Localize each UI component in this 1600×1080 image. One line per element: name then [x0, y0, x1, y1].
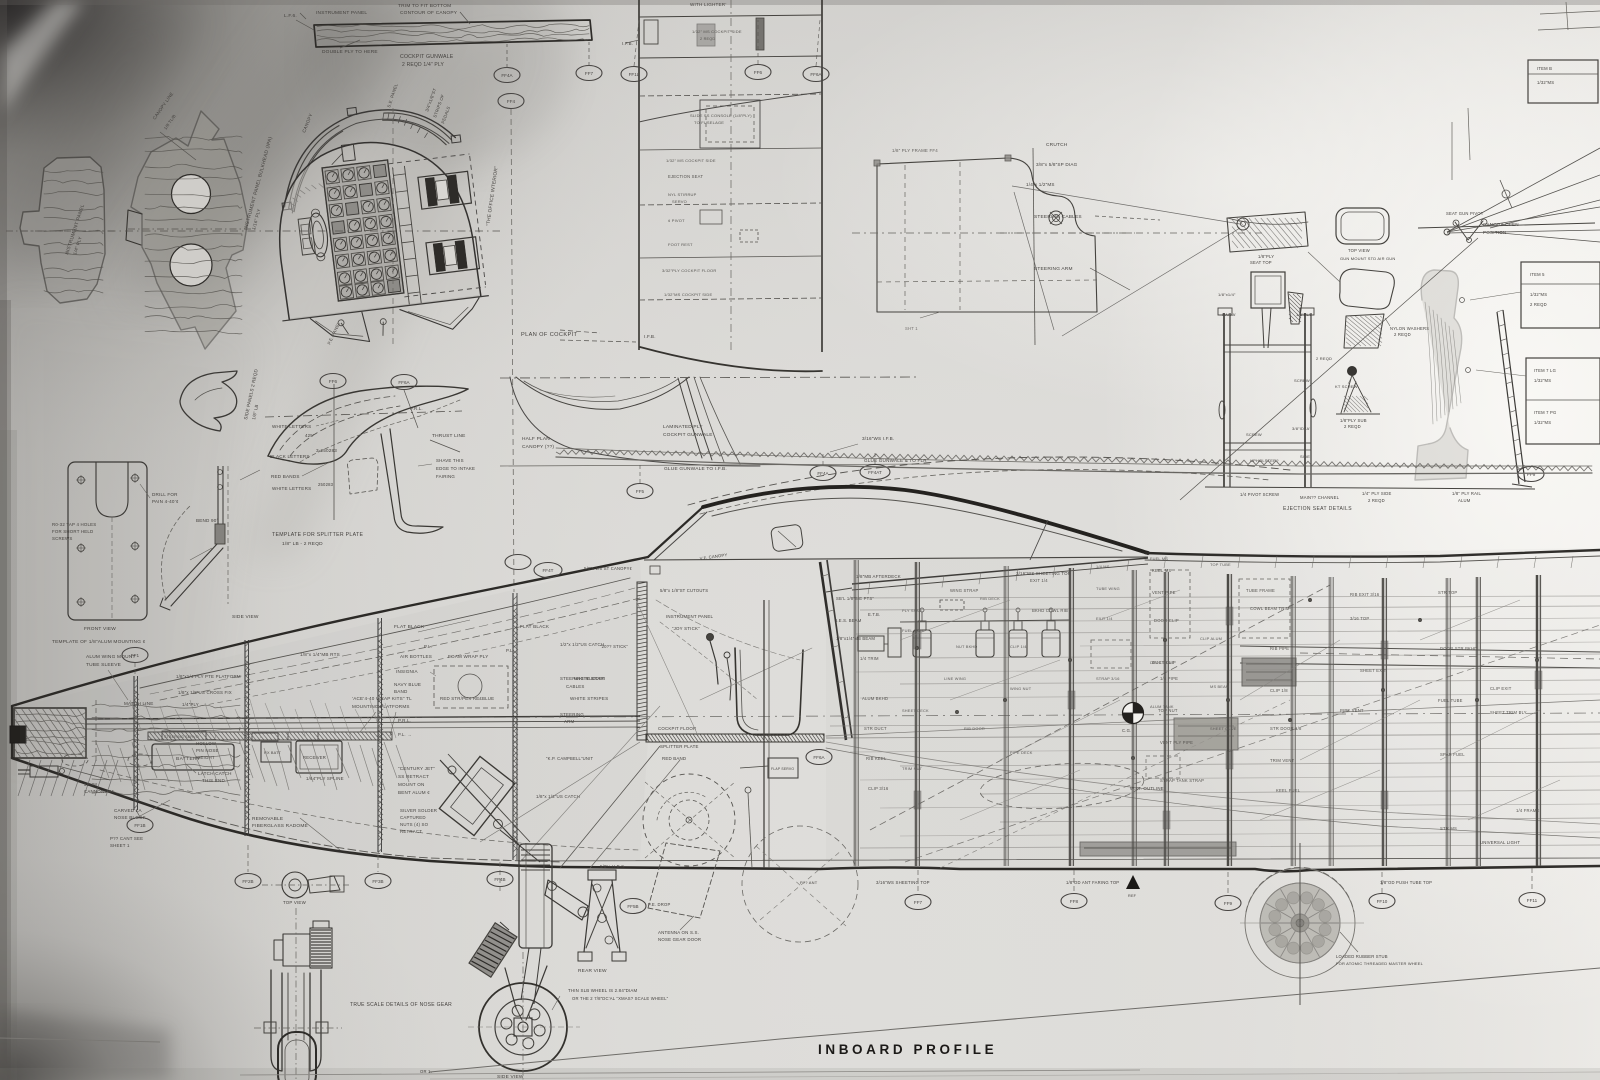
- svg-text:1/8” LB - 2 REQD: 1/8” LB - 2 REQD: [282, 541, 323, 547]
- svg-text:EJECTION SEAT DETAILS: EJECTION SEAT DETAILS: [1283, 506, 1352, 512]
- svg-text:ANTENNA ON S.S.: ANTENNA ON S.S.: [658, 930, 699, 935]
- svg-text:1/4”x 1/2”MS: 1/4”x 1/2”MS: [1026, 182, 1055, 187]
- svg-text:SHEET GLUE: SHEET GLUE: [1210, 726, 1237, 731]
- svg-text:FAIRING: FAIRING: [436, 474, 455, 479]
- svg-text:TOP VIEW: TOP VIEW: [283, 900, 307, 905]
- svg-text:FRONT VIEW: FRONT VIEW: [84, 626, 116, 632]
- svg-text:EXIT 1/4: EXIT 1/4: [1096, 616, 1113, 621]
- svg-text:SHT 1: SHT 1: [905, 326, 918, 331]
- svg-text:1/32”MS: 1/32”MS: [1534, 378, 1551, 383]
- svg-text:THIN SLB WHEEL IS 2.84”DIAM: THIN SLB WHEEL IS 2.84”DIAM: [568, 988, 638, 993]
- svg-text:HALF PLAN: HALF PLAN: [522, 436, 550, 442]
- svg-text:FF6A: FF6A: [810, 72, 822, 77]
- svg-text:GUN MOUNT STD AIR GUN: GUN MOUNT STD AIR GUN: [1340, 256, 1395, 261]
- svg-text:INSTRUMENT PANEL: INSTRUMENT PANEL: [316, 10, 367, 16]
- svg-text:PLAN OF COCKPIT: PLAN OF COCKPIT: [521, 332, 578, 338]
- svg-text:RAIL’A’: RAIL’A’: [1222, 312, 1236, 317]
- svg-text:DECK GLUE: DECK GLUE: [1150, 660, 1174, 665]
- svg-text:5/8”+ H.D.S.: 5/8”+ H.D.S.: [600, 864, 626, 869]
- svg-text:SHEET 1: SHEET 1: [110, 843, 130, 848]
- svg-text:3/16”WS I.F.B.: 3/16”WS I.F.B.: [862, 436, 894, 441]
- svg-text:P.R.L.: P.R.L.: [410, 406, 423, 411]
- svg-text:FF6: FF6: [754, 70, 763, 75]
- svg-text:COCKPIT FLOOR: COCKPIT FLOOR: [658, 726, 696, 731]
- svg-text:SHEET EXIT: SHEET EXIT: [1360, 668, 1387, 673]
- svg-text:SLIDE SS CONSOLE (1/8”PLY): SLIDE SS CONSOLE (1/8”PLY): [690, 113, 752, 118]
- svg-text:¢ PIVOT: ¢ PIVOT: [668, 218, 685, 223]
- svg-text:CANOPY (??): CANOPY (??): [522, 444, 554, 450]
- svg-text:CLIP 1/8: CLIP 1/8: [1270, 688, 1288, 693]
- svg-text:CANOPY OPEN: CANOPY OPEN: [1483, 222, 1519, 227]
- svg-text:DOUBLE PLY TO HERE: DOUBLE PLY TO HERE: [322, 49, 378, 55]
- svg-text:SEAT TOP: SEAT TOP: [1250, 260, 1272, 265]
- svg-text:FF9: FF9: [1224, 901, 1233, 906]
- svg-text:VENT PIPE: VENT PIPE: [1152, 590, 1176, 595]
- svg-text:MS BEAM: MS BEAM: [1210, 684, 1229, 689]
- svg-text:COCKPIT GUNWALE: COCKPIT GUNWALE: [663, 432, 713, 438]
- svg-text:2 REQD: 2 REQD: [1368, 498, 1385, 503]
- svg-text:FF10: FF10: [1377, 899, 1388, 904]
- svg-text:3/16”WS SHEETING TOP: 3/16”WS SHEETING TOP: [876, 880, 930, 885]
- svg-text:STRAP 3/16: STRAP 3/16: [1096, 676, 1120, 681]
- svg-text:STR TOP: STR TOP: [1438, 590, 1457, 595]
- svg-text:RIB KEEL: RIB KEEL: [866, 756, 887, 761]
- svg-text:3-250283: 3-250283: [316, 448, 337, 453]
- svg-text:1/4 PIPE: 1/4 PIPE: [1160, 676, 1178, 681]
- svg-text:VENT PLY PIPE: VENT PLY PIPE: [1160, 740, 1193, 745]
- svg-text:1/32”MS: 1/32”MS: [1530, 292, 1547, 297]
- svg-text:3/8”ID ’A’: 3/8”ID ’A’: [1292, 426, 1310, 431]
- svg-text:FF3B: FF3B: [372, 879, 383, 884]
- svg-text:THRUST LINE: THRUST LINE: [432, 433, 466, 439]
- svg-text:POSITION: POSITION: [1483, 230, 1507, 235]
- svg-text:RIB DECK: RIB DECK: [980, 596, 1000, 601]
- svg-text:ITEM 5: ITEM 5: [1530, 272, 1545, 277]
- svg-text:NYL STIRRUP: NYL STIRRUP: [668, 192, 697, 197]
- svg-text:I.F.B.: I.F.B.: [644, 334, 656, 339]
- svg-text:FOR SHORT HELD: FOR SHORT HELD: [52, 529, 93, 534]
- svg-text:1/8”PLY: 1/8”PLY: [1258, 254, 1274, 259]
- svg-text:FOOT REST: FOOT REST: [668, 242, 693, 247]
- svg-text:FLAP SERVO: FLAP SERVO: [771, 767, 794, 771]
- svg-text:1/4 MS: 1/4 MS: [1096, 564, 1110, 569]
- svg-text:NUT BKHD: NUT BKHD: [956, 644, 977, 649]
- svg-text:SIDE VIEW: SIDE VIEW: [232, 614, 259, 620]
- svg-text:CRUTCH: CRUTCH: [1046, 142, 1068, 148]
- svg-text:RIB DOOR: RIB DOOR: [964, 726, 985, 731]
- svg-text:RIB PIPE: RIB PIPE: [1270, 646, 1289, 651]
- svg-text:TOP VIEW: TOP VIEW: [1348, 248, 1370, 253]
- svg-text:STR DUCT: STR DUCT: [864, 726, 887, 731]
- svg-text:EXIT 1/4: EXIT 1/4: [1030, 578, 1048, 583]
- svg-text:FF6A: FF6A: [813, 755, 825, 760]
- svg-text:P?? CANT SEE: P?? CANT SEE: [110, 836, 143, 841]
- svg-text:DOOR CLIP: DOOR CLIP: [1154, 618, 1179, 623]
- svg-text:EDGE TO INTAKE: EDGE TO INTAKE: [436, 466, 475, 471]
- svg-text:RED BANDS: RED BANDS: [271, 474, 300, 479]
- svg-text:PIPE DECK: PIPE DECK: [1010, 750, 1033, 755]
- svg-text:STR MS: STR MS: [1440, 826, 1457, 831]
- svg-text:FF4: FF4: [507, 99, 516, 104]
- svg-text:STEERING ARM: STEERING ARM: [1034, 266, 1073, 272]
- svg-text:1/8” PLY FRAME FF4: 1/8” PLY FRAME FF4: [892, 148, 938, 153]
- svg-text:CLIP 3/16: CLIP 3/16: [868, 786, 889, 791]
- svg-text:1/32” MS COCKPIT SIDE: 1/32” MS COCKPIT SIDE: [692, 29, 742, 34]
- svg-text:RED BAND: RED BAND: [662, 756, 686, 761]
- svg-text:FF5: FF5: [636, 489, 645, 494]
- svg-text:DOOR STR BKHD: DOOR STR BKHD: [1440, 646, 1478, 651]
- svg-text:1/32”MS: 1/32”MS: [1537, 80, 1554, 85]
- svg-text:STRAP TANK STRAP: STRAP TANK STRAP: [1160, 778, 1204, 783]
- svg-text:KEEL MS: KEEL MS: [1152, 568, 1171, 573]
- svg-text:FUEL TUBE: FUEL TUBE: [1438, 698, 1463, 703]
- svg-text:CLIP 1/4: CLIP 1/4: [1010, 644, 1027, 649]
- svg-text:P?? ANT: P?? ANT: [800, 880, 818, 885]
- svg-text:PLY SPAR: PLY SPAR: [902, 608, 922, 613]
- svg-text:SCREW: SCREW: [1246, 432, 1262, 437]
- svg-text:ITEM B: ITEM B: [1537, 66, 1552, 71]
- svg-text:1/32” MS COCKPIT SIDE: 1/32” MS COCKPIT SIDE: [666, 158, 716, 163]
- svg-text:R0-32 TAP 4 HOLES: R0-32 TAP 4 HOLES: [52, 522, 96, 527]
- svg-text:SERVO: SERVO: [672, 199, 687, 204]
- svg-text:FF4A: FF4A: [501, 73, 513, 78]
- svg-text:PAIN 4-40’¢: PAIN 4-40’¢: [152, 499, 179, 504]
- svg-text:2 REQD: 2 REQD: [1344, 424, 1361, 429]
- svg-text:LAMINATED PLY: LAMINATED PLY: [663, 424, 703, 430]
- svg-text:FF4T: FF4T: [543, 568, 554, 573]
- svg-text:TRIM NUT: TRIM NUT: [902, 766, 923, 771]
- svg-text:1/4 PIVOT SCREW: 1/4 PIVOT SCREW: [1240, 492, 1279, 497]
- svg-text:CLIP ALUM: CLIP ALUM: [1200, 636, 1222, 641]
- svg-text:FF4AT: FF4AT: [868, 470, 882, 475]
- svg-text:FF1B: FF1B: [134, 823, 145, 828]
- svg-text:KEEL FUEL: KEEL FUEL: [1276, 788, 1301, 793]
- svg-text:TEMPLATE OF 1/8”ALUM MOUNTING: TEMPLATE OF 1/8”ALUM MOUNTING ¢: [52, 639, 146, 645]
- svg-text:5/8”x 1/8”ST CUTOUTS: 5/8”x 1/8”ST CUTOUTS: [660, 588, 708, 593]
- svg-text:SIDE VIEW: SIDE VIEW: [497, 1074, 524, 1080]
- svg-text:1/32”MS: 1/32”MS: [1534, 420, 1551, 425]
- svg-text:L.F.6.: L.F.6.: [284, 13, 297, 19]
- svg-text:GLUE GUNWALE TO I.F.B.: GLUE GUNWALE TO I.F.B.: [664, 466, 727, 472]
- svg-text:ALUM: ALUM: [1458, 498, 1471, 503]
- svg-text:WHITE LETTERS: WHITE LETTERS: [272, 486, 311, 491]
- svg-text:TRIM TO FIT BOTTOM: TRIM TO FIT BOTTOM: [398, 3, 451, 9]
- svg-text:INBOARD PROFILE: INBOARD PROFILE: [818, 1042, 997, 1057]
- svg-text:2 REQD: 2 REQD: [1530, 302, 1547, 307]
- svg-text:P.E. DROP: P.E. DROP: [648, 902, 670, 907]
- svg-text:2 REQD: 2 REQD: [1316, 356, 1332, 361]
- svg-text:SCREWS: SCREWS: [52, 536, 72, 541]
- svg-text:SCREW: SCREW: [1294, 378, 1310, 383]
- svg-text:1/4 FRAME: 1/4 FRAME: [1516, 808, 1539, 813]
- svg-text:TO FUSELAGE: TO FUSELAGE: [694, 120, 724, 125]
- svg-text:I.F.B.: I.F.B.: [622, 41, 633, 46]
- svg-text:TRIM VENT: TRIM VENT: [1270, 758, 1295, 763]
- svg-text:SPAR FUEL: SPAR FUEL: [1440, 752, 1465, 757]
- svg-text:TRUE SCALE DETAILS OF NOSE GEA: TRUE SCALE DETAILS OF NOSE GEAR: [350, 1002, 452, 1008]
- svg-text:INSTRUMENT PANEL: INSTRUMENT PANEL: [666, 614, 714, 619]
- svg-text:CARVED £A: CARVED £A: [114, 808, 142, 813]
- svg-text:WITH LIGHTER’: WITH LIGHTER’: [690, 2, 727, 7]
- svg-text:2 REQD: 2 REQD: [1394, 332, 1411, 337]
- svg-text:1/4 TRIM: 1/4 TRIM: [860, 656, 879, 661]
- svg-text:250283: 250283: [318, 482, 334, 487]
- svg-text:WHITE LETTERS: WHITE LETTERS: [272, 424, 311, 429]
- svg-text:TUBE SLEEVE: TUBE SLEEVE: [86, 662, 121, 668]
- svg-text:WING NUT: WING NUT: [1010, 686, 1032, 691]
- svg-text:1/8”PLY SUB: 1/8”PLY SUB: [1340, 418, 1367, 423]
- svg-text:FF7: FF7: [585, 71, 594, 76]
- svg-text:SHAVE THIS: SHAVE THIS: [436, 458, 464, 463]
- svg-text:TUBE WING: TUBE WING: [1096, 586, 1120, 591]
- svg-text:OR 1.: OR 1.: [420, 1069, 432, 1074]
- svg-text:NOSE GEAR DOOR: NOSE GEAR DOOR: [658, 937, 701, 942]
- svg-text:ITEM 7 PG: ITEM 7 PG: [1534, 410, 1557, 415]
- svg-text:ALUM WING MOUNT: ALUM WING MOUNT: [86, 654, 136, 660]
- svg-text:BEND 90°: BEND 90°: [196, 518, 219, 523]
- svg-text:3/8”x 5/8”SP DIAG: 3/8”x 5/8”SP DIAG: [1036, 162, 1078, 167]
- svg-text:CONTOUR OF CANOPY: CONTOUR OF CANOPY: [400, 10, 458, 16]
- svg-text:FUEL SKIN: FUEL SKIN: [902, 628, 924, 633]
- svg-text:FF7: FF7: [914, 900, 923, 905]
- svg-text:WING STRAP: WING STRAP: [950, 588, 979, 593]
- svg-text:ALUM TANK: ALUM TANK: [1150, 704, 1174, 709]
- svg-text:FF8: FF8: [1070, 899, 1079, 904]
- svg-text:COWL BEAM TRIM: COWL BEAM TRIM: [1250, 606, 1290, 611]
- svg-text:TOP TUBE: TOP TUBE: [1210, 562, 1231, 567]
- svg-text:NYLON WASHERS: NYLON WASHERS: [1390, 326, 1429, 331]
- svg-text:FOR ATOMIC THREADED MASTER WHE: FOR ATOMIC THREADED MASTER WHEEL: [1336, 961, 1424, 966]
- svg-text:SHEET DECK: SHEET DECK: [902, 708, 929, 713]
- svg-text:BKHD COWL RIB: BKHD COWL RIB: [1032, 608, 1068, 613]
- svg-text:3/16 TOP: 3/16 TOP: [1350, 616, 1369, 621]
- svg-text:ALUM BKHD: ALUM BKHD: [862, 696, 888, 701]
- svg-text:UNIVERSAL LIGHT: UNIVERSAL LIGHT: [1480, 840, 1520, 845]
- svg-text:LINE WING: LINE WING: [944, 676, 966, 681]
- svg-text:“JOY STICK”: “JOY STICK”: [672, 626, 700, 631]
- svg-text:TUBE FRAME: TUBE FRAME: [1246, 588, 1275, 593]
- svg-text:1/8” PLY RAIL: 1/8” PLY RAIL: [1452, 491, 1481, 496]
- svg-text:RIB EXIT 3/16: RIB EXIT 3/16: [1350, 592, 1380, 597]
- svg-text:1/8”OD PUSH TUBE TOP: 1/8”OD PUSH TUBE TOP: [1380, 880, 1432, 885]
- svg-text:REAR VIEW: REAR VIEW: [578, 968, 607, 974]
- svg-text:2 REQD: 2 REQD: [700, 37, 715, 41]
- svg-text:MAIN?? CHANNEL: MAIN?? CHANNEL: [1300, 495, 1340, 500]
- svg-text:FF6A: FF6A: [398, 380, 410, 385]
- svg-text:FUEL MS: FUEL MS: [1150, 556, 1168, 561]
- svg-text:COCKPIT GUNWALE: COCKPIT GUNWALE: [400, 54, 454, 60]
- svg-text:SPLITTER PLATE: SPLITTER PLATE: [660, 744, 699, 749]
- svg-text:PIPE VENT: PIPE VENT: [1340, 708, 1364, 713]
- svg-text:425’: 425’: [305, 433, 314, 438]
- svg-text:2 REQD 1/4” PLY: 2 REQD 1/4” PLY: [402, 62, 445, 68]
- svg-text:1/32”MS COCKPIT SIDE: 1/32”MS COCKPIT SIDE: [664, 292, 713, 297]
- svg-text:FF2B: FF2B: [242, 879, 253, 884]
- svg-text:1/4” PLY SIDE: 1/4” PLY SIDE: [1362, 491, 1391, 496]
- svg-text:REF: REF: [1128, 894, 1137, 898]
- svg-text:BLACK LETTERS: BLACK LETTERS: [270, 454, 310, 459]
- svg-text:3/32”PLY COCKPIT FLOOR: 3/32”PLY COCKPIT FLOOR: [662, 268, 716, 273]
- svg-text:FF1: FF1: [131, 653, 140, 658]
- svg-text:DRILL FOR: DRILL FOR: [152, 492, 178, 497]
- svg-text:ITEM 7 LG: ITEM 7 LG: [1534, 368, 1556, 373]
- svg-text:1/8”x1/4”: 1/8”x1/4”: [1218, 292, 1236, 297]
- svg-text:KT SCREW: KT SCREW: [1335, 384, 1358, 389]
- svg-text:FF11: FF11: [1527, 898, 1538, 903]
- svg-text:LOADED RUBBER STUB: LOADED RUBBER STUB: [1336, 954, 1388, 959]
- svg-text:FF6: FF6: [329, 379, 338, 384]
- svg-text:EJECTION SEAT: EJECTION SEAT: [668, 174, 703, 179]
- svg-text:SHEET TRIM PLY: SHEET TRIM PLY: [1490, 710, 1527, 715]
- svg-text:FF1L: FF1L: [629, 72, 640, 77]
- svg-text:SIDE: SIDE: [1300, 454, 1310, 459]
- svg-text:FF5B: FF5B: [627, 904, 638, 909]
- svg-text:CLIP EXIT: CLIP EXIT: [1490, 686, 1512, 691]
- svg-text:STR DOOR 1/8: STR DOOR 1/8: [1270, 726, 1302, 731]
- svg-text:C.G.: C.G.: [1122, 728, 1131, 733]
- svg-text:OR THE 2 7/8”DC’AL “XMAS? SCAL: OR THE 2 7/8”DC’AL “XMAS? SCALE WHEEL”: [572, 996, 669, 1001]
- svg-text:TEMPLATE FOR SPLITTER PLATE: TEMPLATE FOR SPLITTER PLATE: [272, 532, 363, 538]
- svg-text:1/8”PLY: 1/8”PLY: [1296, 312, 1312, 317]
